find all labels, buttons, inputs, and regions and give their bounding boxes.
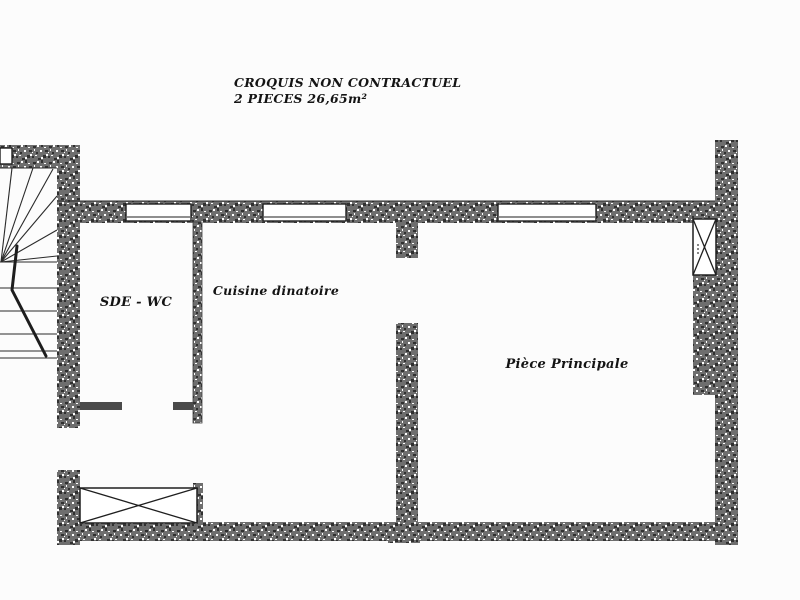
bathroom-partition-wall <box>193 222 202 423</box>
right-wall <box>715 140 738 545</box>
left-wall-upper <box>57 145 80 428</box>
staircase <box>0 168 57 358</box>
window-stairwell <box>0 148 12 164</box>
bathroom-door-jamb-right <box>173 402 193 410</box>
shaft-box <box>693 219 716 275</box>
floor-plan: CROQUIS NON CONTRACTUEL 2 PIECES 26,65m²… <box>0 0 800 600</box>
window-living-room <box>498 204 596 221</box>
bathroom-door-jamb-left <box>80 402 122 410</box>
plan-title-line1: CROQUIS NON CONTRACTUEL <box>234 75 461 91</box>
plan-title: CROQUIS NON CONTRACTUEL 2 PIECES 26,65m² <box>234 75 461 107</box>
room-label-kitchen: Cuisine dinatoire <box>213 283 339 298</box>
plan-title-line2: 2 PIECES 26,65m² <box>234 91 461 107</box>
right-inner-wall <box>693 275 715 395</box>
window-bathroom <box>126 204 191 221</box>
partition-wall-main <box>396 323 418 543</box>
partition-wall-stub <box>396 222 418 258</box>
partition-wall-foot <box>388 522 420 543</box>
room-label-bathroom: SDE - WC <box>100 295 172 310</box>
left-wall-lower <box>57 470 80 545</box>
balcony-box <box>80 488 197 523</box>
window-kitchen <box>263 204 346 221</box>
room-label-living: Pièce Principale <box>505 357 628 372</box>
